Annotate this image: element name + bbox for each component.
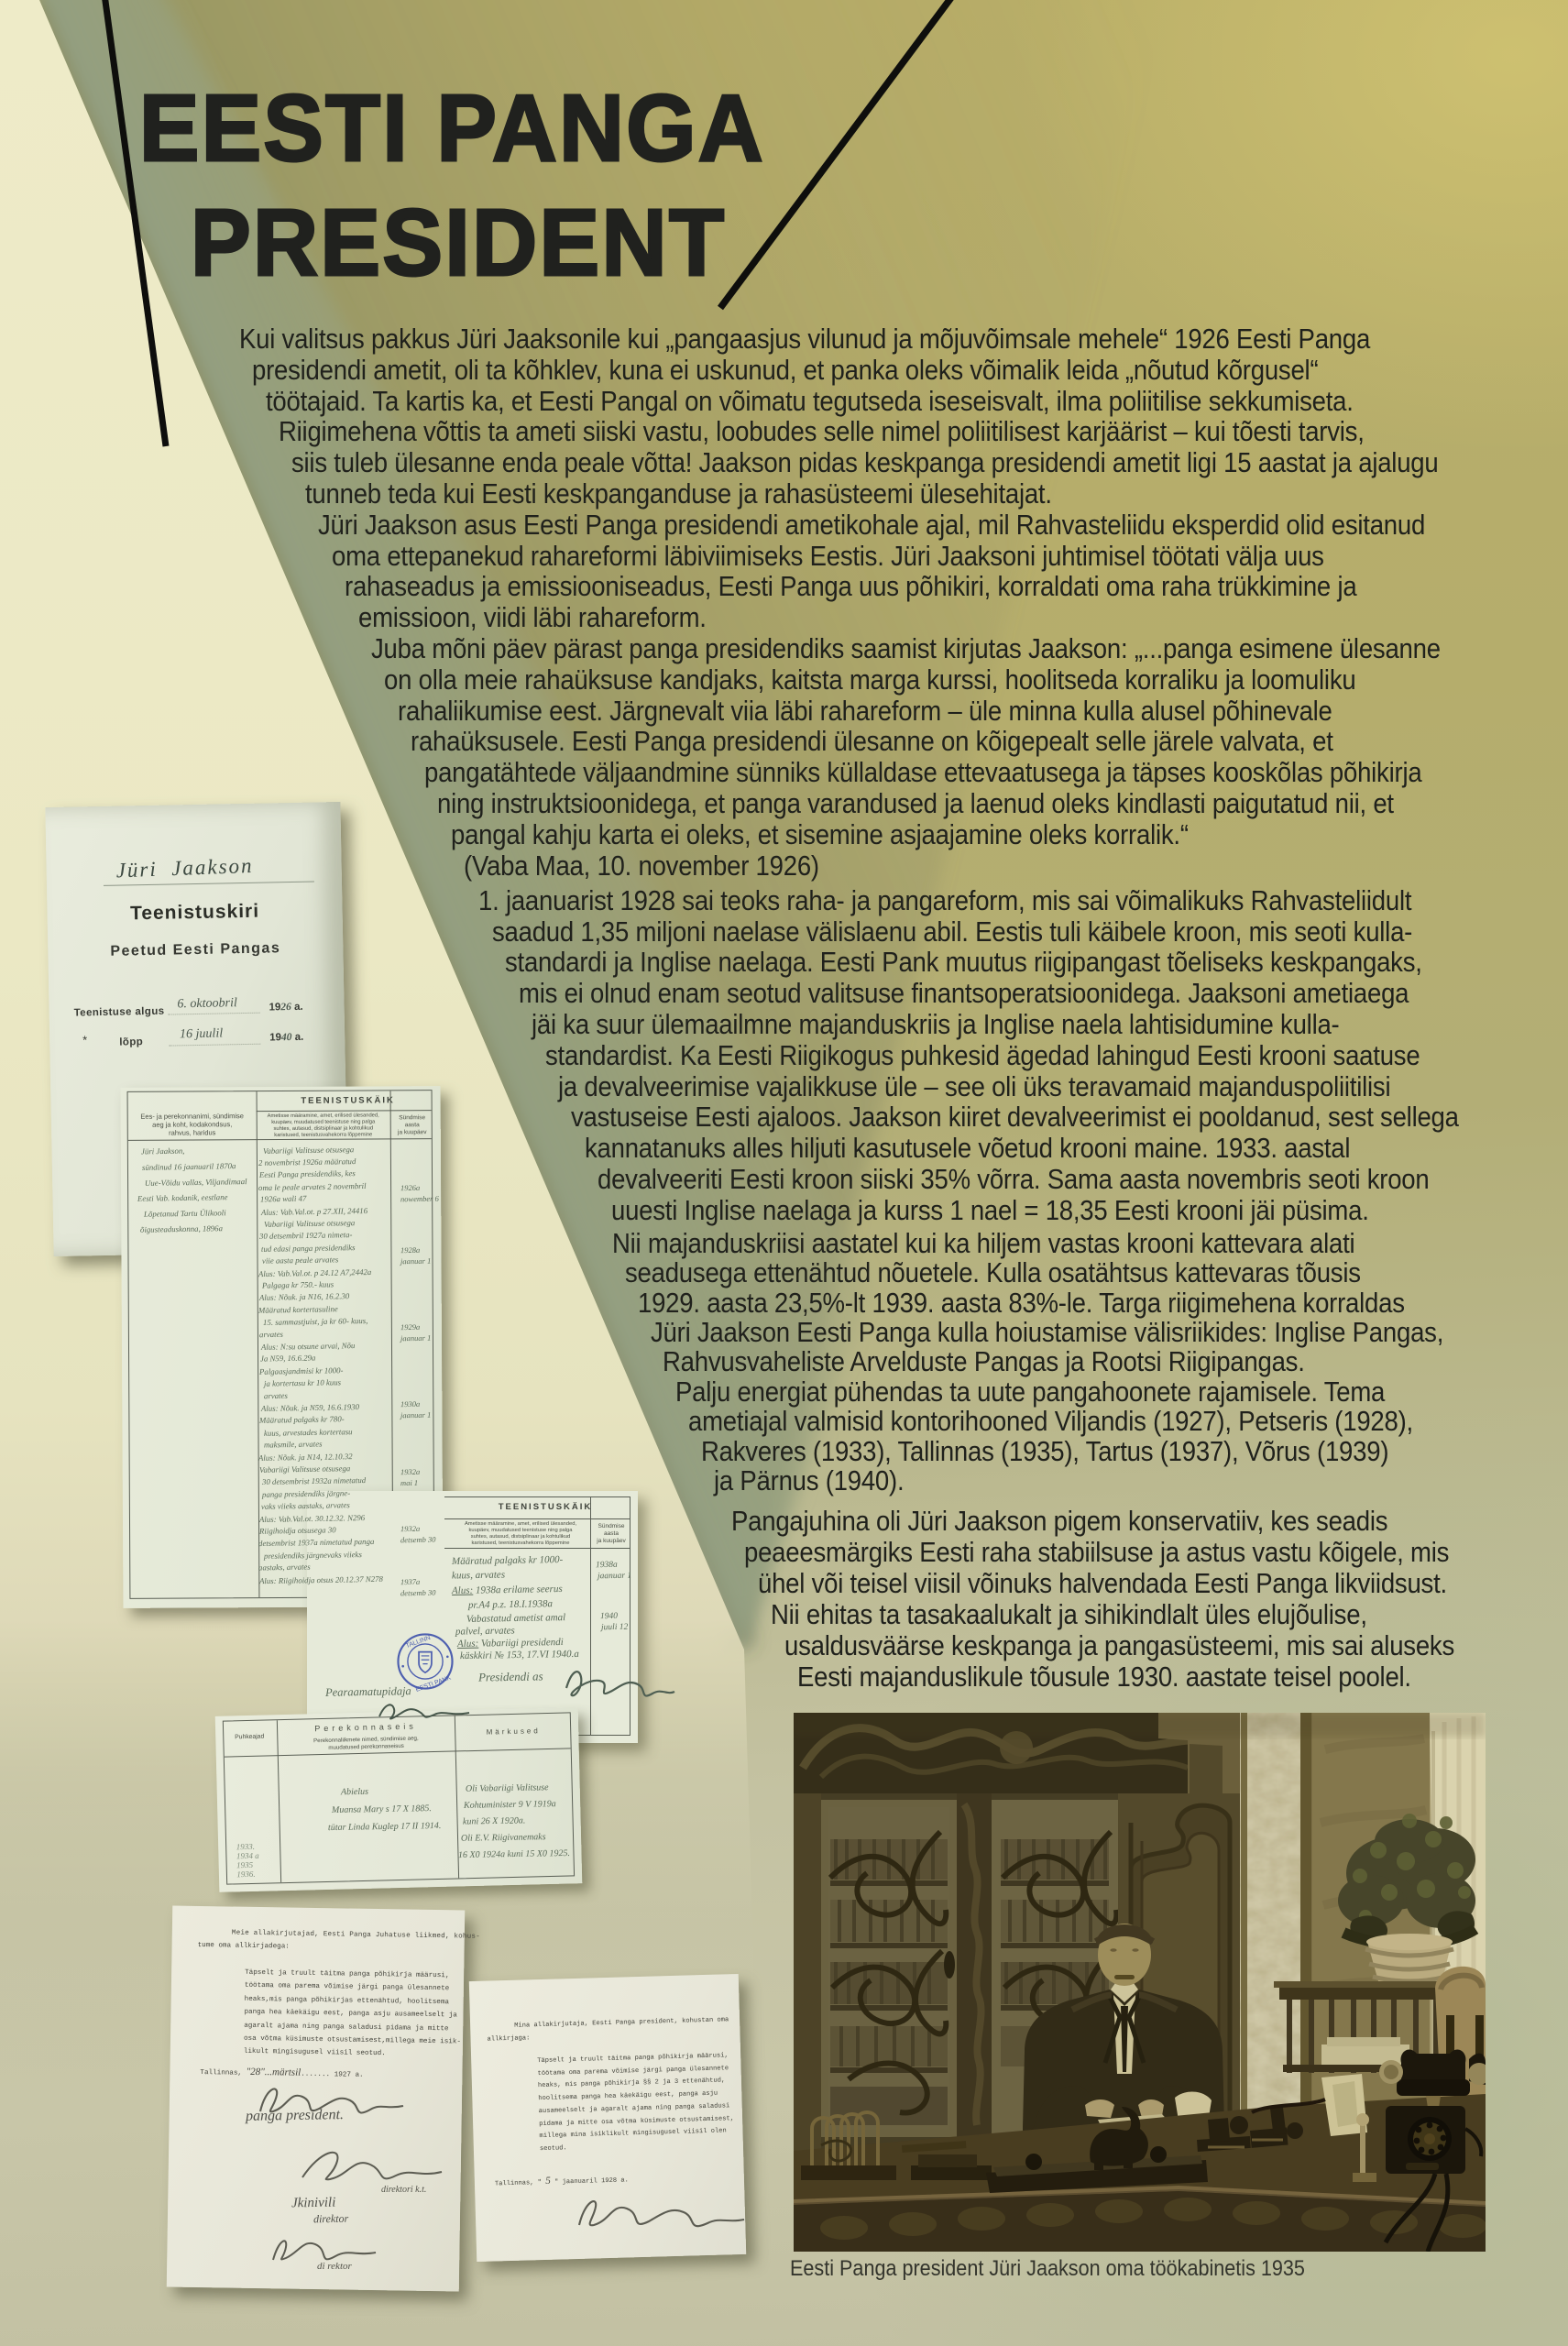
svg-text:direktori k.t.: direktori k.t.	[381, 2185, 426, 2195]
svg-text:TALLINN: TALLINN	[405, 1635, 432, 1650]
svg-text:di rektor: di rektor	[317, 2261, 352, 2271]
